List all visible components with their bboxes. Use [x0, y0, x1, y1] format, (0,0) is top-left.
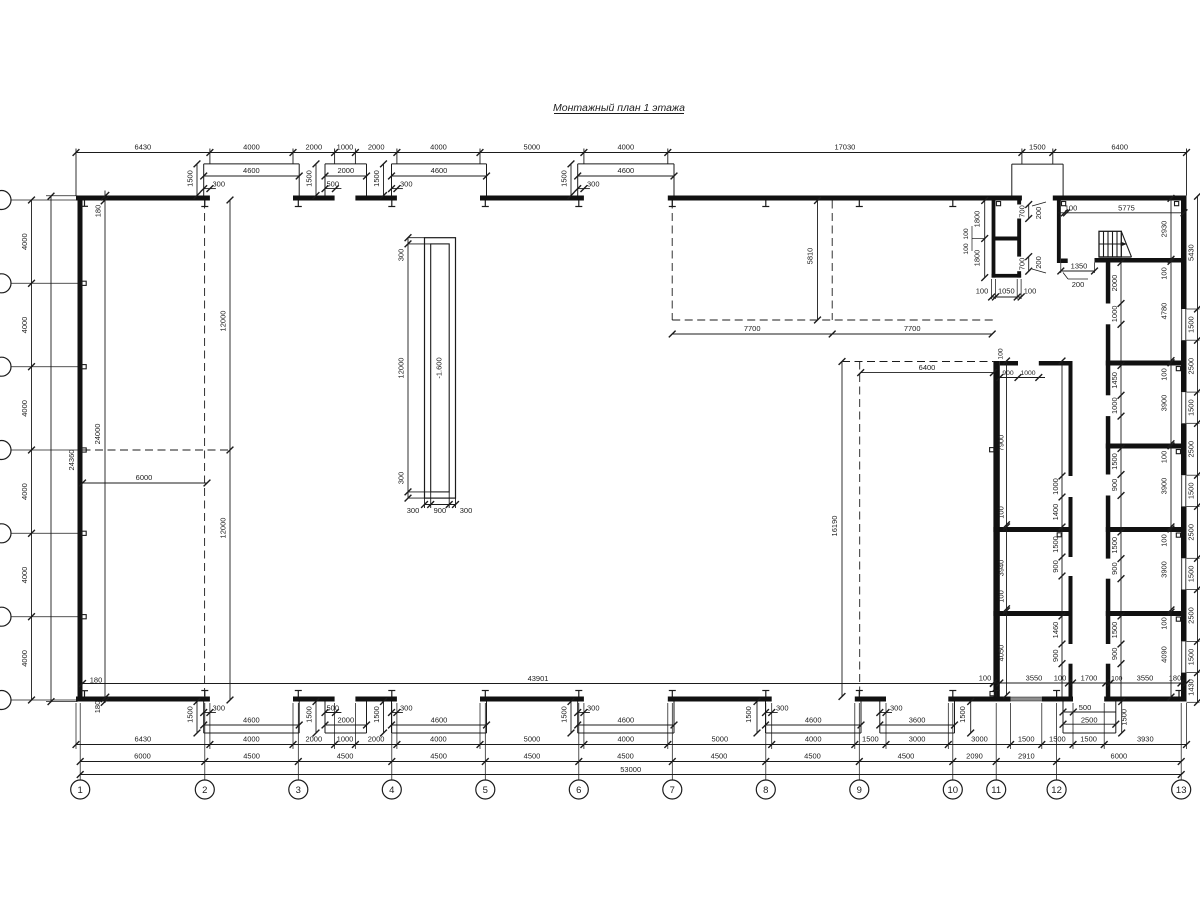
svg-text:4000: 4000: [20, 233, 29, 250]
svg-text:13: 13: [1176, 785, 1187, 796]
svg-text:1000: 1000: [337, 735, 354, 744]
svg-text:2090: 2090: [966, 752, 983, 761]
svg-text:8: 8: [763, 785, 768, 796]
svg-text:300: 300: [407, 506, 420, 515]
svg-text:1500: 1500: [1018, 735, 1035, 744]
svg-text:4000: 4000: [20, 317, 29, 334]
svg-text:900: 900: [434, 506, 447, 515]
svg-text:3900: 3900: [1160, 478, 1169, 495]
svg-text:5000: 5000: [524, 143, 541, 152]
svg-text:100: 100: [979, 674, 992, 683]
svg-text:1500: 1500: [1080, 735, 1097, 744]
svg-text:4090: 4090: [1160, 646, 1169, 663]
svg-text:4600: 4600: [431, 715, 448, 724]
svg-text:4000: 4000: [805, 735, 822, 744]
svg-text:3000: 3000: [909, 735, 926, 744]
svg-text:1430: 1430: [1187, 679, 1196, 696]
svg-text:300: 300: [396, 472, 405, 485]
svg-text:900: 900: [1051, 560, 1060, 573]
svg-text:100: 100: [997, 348, 1004, 360]
svg-text:4500: 4500: [337, 752, 354, 761]
svg-text:1500: 1500: [305, 170, 314, 187]
svg-text:2000: 2000: [305, 735, 322, 744]
svg-text:1500: 1500: [372, 170, 381, 187]
svg-text:4000: 4000: [20, 400, 29, 417]
svg-text:300: 300: [776, 704, 789, 713]
svg-text:100: 100: [1160, 267, 1169, 280]
svg-text:3: 3: [296, 785, 301, 796]
svg-text:300: 300: [400, 704, 413, 713]
svg-text:1500: 1500: [1110, 537, 1119, 554]
svg-text:3550: 3550: [1137, 674, 1154, 683]
svg-text:4000: 4000: [430, 143, 447, 152]
svg-text:1500: 1500: [1187, 649, 1196, 666]
svg-text:12000: 12000: [219, 311, 228, 332]
svg-text:2000: 2000: [337, 166, 354, 175]
svg-text:100: 100: [1065, 204, 1078, 213]
svg-text:100: 100: [963, 228, 970, 240]
svg-text:6000: 6000: [136, 473, 153, 482]
svg-text:9: 9: [857, 785, 862, 796]
svg-text:6400: 6400: [919, 363, 936, 372]
svg-text:1460: 1460: [1051, 622, 1060, 639]
svg-text:2910: 2910: [1018, 752, 1035, 761]
svg-text:1500: 1500: [1120, 709, 1129, 726]
svg-text:100: 100: [1160, 368, 1169, 381]
svg-text:7: 7: [670, 785, 675, 796]
svg-text:100: 100: [1111, 676, 1123, 683]
svg-text:4500: 4500: [430, 752, 447, 761]
svg-text:1050: 1050: [998, 287, 1015, 296]
svg-text:16190: 16190: [830, 516, 839, 537]
svg-text:4600: 4600: [243, 166, 260, 175]
svg-text:4000: 4000: [20, 567, 29, 584]
svg-text:180: 180: [94, 205, 103, 218]
svg-text:4500: 4500: [804, 752, 821, 761]
svg-text:6430: 6430: [135, 143, 152, 152]
svg-text:1000: 1000: [1110, 306, 1119, 323]
svg-text:6430: 6430: [135, 735, 152, 744]
svg-text:4000: 4000: [243, 143, 260, 152]
svg-text:12: 12: [1051, 785, 1062, 796]
svg-text:3600: 3600: [909, 715, 926, 724]
svg-text:300: 300: [460, 506, 473, 515]
svg-text:2000: 2000: [1110, 275, 1119, 292]
svg-text:2930: 2930: [1160, 221, 1169, 238]
svg-text:100: 100: [1160, 451, 1169, 464]
svg-text:5430: 5430: [1187, 244, 1196, 261]
svg-text:24000: 24000: [93, 424, 102, 445]
svg-text:200: 200: [1034, 207, 1043, 220]
svg-text:1500: 1500: [186, 170, 195, 187]
svg-text:10: 10: [948, 785, 959, 796]
svg-text:100: 100: [996, 590, 1005, 603]
svg-text:200: 200: [1034, 256, 1043, 269]
svg-text:2500: 2500: [1187, 524, 1196, 541]
svg-text:1500: 1500: [560, 170, 569, 187]
svg-text:1800: 1800: [973, 211, 982, 228]
svg-text:3900: 3900: [1160, 395, 1169, 412]
svg-text:-1.600: -1.600: [435, 357, 444, 378]
svg-text:500: 500: [327, 180, 340, 189]
svg-text:53000: 53000: [620, 765, 641, 774]
svg-text:2500: 2500: [1187, 358, 1196, 375]
svg-text:3550: 3550: [1026, 674, 1043, 683]
svg-text:300: 300: [213, 704, 226, 713]
svg-text:100: 100: [1054, 674, 1067, 683]
svg-text:1500: 1500: [862, 735, 879, 744]
svg-text:4: 4: [389, 785, 394, 796]
svg-text:4500: 4500: [524, 752, 541, 761]
svg-text:2500: 2500: [1081, 716, 1098, 725]
svg-text:4000: 4000: [430, 735, 447, 744]
svg-text:5775: 5775: [1118, 204, 1135, 213]
svg-text:7700: 7700: [744, 324, 761, 333]
svg-text:1500: 1500: [1051, 536, 1060, 553]
svg-text:6000: 6000: [1111, 752, 1128, 761]
svg-text:2500: 2500: [1187, 441, 1196, 458]
svg-text:1500: 1500: [305, 706, 314, 723]
svg-text:1000: 1000: [337, 143, 354, 152]
svg-text:1500: 1500: [958, 706, 967, 723]
svg-text:7900: 7900: [996, 435, 1005, 452]
svg-text:200: 200: [1072, 280, 1085, 289]
svg-text:43901: 43901: [528, 674, 549, 683]
svg-text:2000: 2000: [305, 143, 322, 152]
svg-text:300: 300: [890, 704, 903, 713]
svg-text:4000: 4000: [243, 735, 260, 744]
svg-text:1: 1: [78, 785, 83, 796]
svg-text:300: 300: [400, 180, 413, 189]
svg-text:6: 6: [576, 785, 581, 796]
svg-text:5000: 5000: [711, 735, 728, 744]
svg-text:4500: 4500: [617, 752, 634, 761]
svg-text:3000: 3000: [971, 735, 988, 744]
svg-text:100: 100: [1160, 534, 1169, 547]
svg-text:1500: 1500: [1110, 453, 1119, 470]
svg-text:6400: 6400: [1111, 143, 1128, 152]
svg-text:4600: 4600: [243, 715, 260, 724]
svg-text:5000: 5000: [524, 735, 541, 744]
svg-text:2500: 2500: [1187, 607, 1196, 624]
svg-text:12000: 12000: [219, 518, 228, 539]
svg-text:100: 100: [1160, 617, 1169, 630]
svg-text:3930: 3930: [1137, 735, 1154, 744]
svg-text:300: 300: [587, 180, 600, 189]
svg-text:5: 5: [483, 785, 488, 796]
svg-text:300: 300: [587, 704, 600, 713]
svg-text:900: 900: [1110, 479, 1119, 492]
svg-text:4500: 4500: [898, 752, 915, 761]
svg-text:17030: 17030: [834, 143, 855, 152]
svg-text:300: 300: [396, 249, 405, 262]
svg-text:2000: 2000: [368, 735, 385, 744]
svg-text:100: 100: [996, 506, 1005, 519]
svg-text:4000: 4000: [20, 650, 29, 667]
svg-text:2000: 2000: [368, 143, 385, 152]
svg-text:1500: 1500: [1187, 566, 1196, 583]
svg-text:1500: 1500: [1187, 316, 1196, 333]
svg-text:1000: 1000: [1020, 370, 1035, 377]
svg-text:6000: 6000: [134, 752, 151, 761]
svg-text:500: 500: [1079, 703, 1092, 712]
svg-text:11: 11: [991, 785, 1001, 796]
svg-text:1350: 1350: [1071, 261, 1088, 270]
svg-text:700: 700: [1018, 205, 1027, 218]
svg-text:1500: 1500: [1187, 482, 1196, 499]
svg-text:4500: 4500: [711, 752, 728, 761]
svg-text:4600: 4600: [618, 166, 635, 175]
svg-text:7700: 7700: [904, 324, 921, 333]
svg-text:4000: 4000: [617, 735, 634, 744]
svg-text:1500: 1500: [1110, 622, 1119, 639]
svg-text:100: 100: [976, 287, 989, 296]
svg-text:180: 180: [1169, 674, 1182, 683]
svg-text:4600: 4600: [618, 715, 635, 724]
svg-text:1700: 1700: [1081, 674, 1098, 683]
svg-text:Монтажный план 1 этажа: Монтажный план 1 этажа: [553, 102, 685, 114]
svg-text:900: 900: [1110, 562, 1119, 575]
svg-text:900: 900: [1002, 370, 1014, 377]
svg-text:1500: 1500: [1029, 143, 1046, 152]
svg-text:1500: 1500: [560, 706, 569, 723]
svg-text:1500: 1500: [372, 706, 381, 723]
svg-text:300: 300: [213, 180, 226, 189]
svg-text:1000: 1000: [1051, 478, 1060, 495]
svg-text:1500: 1500: [1049, 735, 1066, 744]
svg-text:24360: 24360: [67, 450, 76, 471]
svg-text:1800: 1800: [973, 250, 982, 267]
svg-text:500: 500: [327, 704, 340, 713]
svg-text:100: 100: [1024, 287, 1037, 296]
svg-text:900: 900: [1051, 649, 1060, 662]
svg-text:180: 180: [93, 701, 102, 714]
svg-text:4600: 4600: [431, 166, 448, 175]
svg-text:3940: 3940: [996, 560, 1005, 577]
svg-text:2: 2: [202, 785, 207, 796]
svg-text:4500: 4500: [243, 752, 260, 761]
svg-text:1000: 1000: [1110, 397, 1119, 414]
svg-text:1450: 1450: [1110, 372, 1119, 389]
svg-text:3900: 3900: [1160, 561, 1169, 578]
svg-text:1500: 1500: [1187, 399, 1196, 416]
svg-text:1400: 1400: [1051, 504, 1060, 521]
svg-text:100: 100: [963, 243, 970, 255]
svg-text:4050: 4050: [996, 645, 1005, 662]
svg-text:4000: 4000: [20, 483, 29, 500]
svg-text:2000: 2000: [337, 715, 354, 724]
svg-text:1500: 1500: [186, 706, 195, 723]
svg-text:12000: 12000: [396, 358, 405, 379]
svg-text:900: 900: [1110, 648, 1119, 661]
svg-text:5810: 5810: [806, 248, 815, 265]
svg-text:1500: 1500: [744, 706, 753, 723]
svg-text:4780: 4780: [1160, 303, 1169, 320]
svg-text:4000: 4000: [617, 143, 634, 152]
svg-text:700: 700: [1018, 258, 1027, 271]
svg-text:4600: 4600: [805, 715, 822, 724]
